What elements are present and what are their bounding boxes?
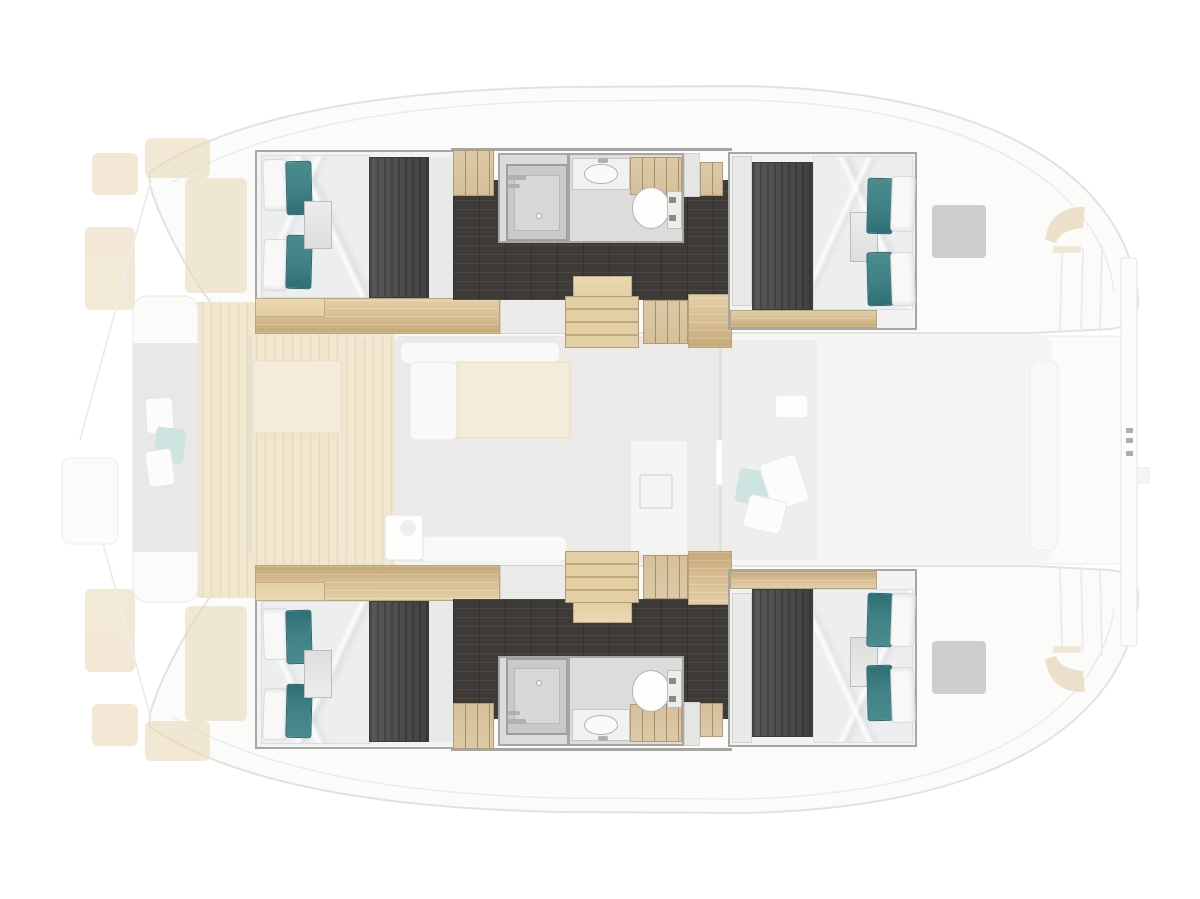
bathroom	[498, 656, 684, 746]
nightstand	[304, 201, 332, 249]
aft-bed-runner	[752, 162, 813, 310]
companionway-steps	[565, 296, 639, 348]
shower-mixer	[508, 719, 526, 724]
toilet-bowl	[632, 187, 670, 229]
under-bath-cabinet-face	[500, 565, 566, 601]
cockpit-side-table	[775, 395, 808, 418]
toilet-hinge	[669, 197, 676, 203]
aft-wardrobe	[732, 593, 752, 743]
shower-drain	[536, 680, 542, 686]
catamaran-floorplan	[0, 0, 1200, 899]
sink-basin	[584, 164, 618, 184]
wood-landing	[688, 294, 732, 348]
wood-landing	[688, 551, 732, 605]
cabin-floor-step	[255, 582, 325, 601]
shower-mixer	[508, 175, 526, 180]
pillow-white	[890, 667, 916, 724]
nightstand	[304, 650, 332, 698]
bench-pillow-white	[145, 448, 176, 487]
aft-cabin-floor	[730, 571, 877, 589]
wardrobe-cabinet	[453, 150, 494, 196]
toilet-bowl	[632, 670, 670, 712]
shower-tray	[514, 175, 560, 231]
forward-bed-runner	[369, 157, 429, 298]
corridor-cabinet	[700, 162, 723, 196]
shower-drain	[536, 213, 542, 219]
companionway-steps	[565, 551, 639, 603]
aft-wardrobe	[732, 156, 752, 306]
forward-bed-foot	[429, 601, 453, 742]
shower-head	[508, 184, 520, 188]
corridor-cabinet	[700, 703, 723, 737]
forward-bed-foot	[429, 157, 453, 298]
toilet-hinge	[669, 678, 676, 684]
pillow-white	[890, 593, 916, 648]
galley-sink	[640, 475, 672, 508]
forward-seat-pad	[253, 361, 341, 433]
aft-cockpit	[722, 334, 1058, 565]
shower-partition	[567, 155, 570, 241]
shower-head	[508, 711, 520, 715]
forward-cockpit	[62, 296, 199, 602]
wardrobe-face	[684, 153, 700, 197]
under-bath-cabinet-face	[500, 298, 566, 334]
drawer-cabinet	[643, 300, 688, 344]
steps-landing-top	[573, 601, 632, 623]
toilet-tank	[667, 670, 682, 708]
bathroom	[498, 153, 684, 243]
faded-deck-layer	[0, 0, 1200, 899]
forward-bed-runner	[369, 601, 429, 742]
steps-landing-top	[573, 276, 632, 298]
stern-davit-beam	[1121, 258, 1149, 646]
aft-bed-runner	[752, 589, 813, 737]
sink-faucet	[598, 736, 608, 741]
toilet-hinge	[669, 696, 676, 702]
toilet-hinge	[669, 215, 676, 221]
shower-partition	[567, 658, 570, 744]
nav-seat	[400, 520, 416, 536]
bowsprit-platform	[62, 458, 118, 544]
sink-faucet	[598, 158, 608, 163]
hull-upper-interior	[255, 148, 920, 348]
drawer-cabinet	[643, 555, 688, 599]
salon-table	[457, 362, 570, 438]
wardrobe-face	[684, 702, 700, 746]
shower-tray	[514, 668, 560, 724]
pillow-white	[890, 252, 916, 307]
wardrobe-cabinet	[453, 703, 494, 749]
cabin-floor-step	[255, 298, 325, 317]
salon-sofa-seat	[410, 362, 457, 440]
forward-crossbeam	[247, 337, 252, 553]
cockpit-aft-bench	[1030, 360, 1058, 550]
sink-basin	[584, 715, 618, 735]
aft-cabin-floor	[730, 310, 877, 328]
pillow-white	[890, 176, 916, 233]
hull-lower-interior	[255, 551, 920, 751]
